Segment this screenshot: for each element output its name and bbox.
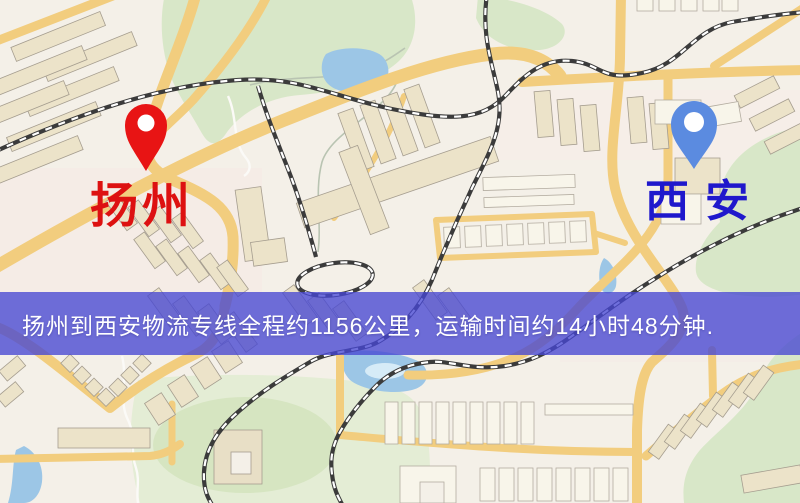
destination-pin-hole	[684, 112, 704, 132]
route-info-text: 扬州到西安物流专线全程约1156公里，运输时间约14小时48分钟.	[22, 292, 714, 355]
destination-label: 西安	[645, 177, 765, 226]
map-background: 扬州 西安	[0, 0, 800, 503]
route-info-banner: 扬州到西安物流专线全程约1156公里，运输时间约14小时48分钟.	[0, 292, 800, 355]
map-canvas[interactable]: 扬州 西安 扬州到西安物流专线全程约1156公里，运输时间约14小时48分钟.	[0, 0, 800, 503]
origin-pin-hole	[138, 115, 155, 132]
origin-label: 扬州	[90, 180, 194, 233]
